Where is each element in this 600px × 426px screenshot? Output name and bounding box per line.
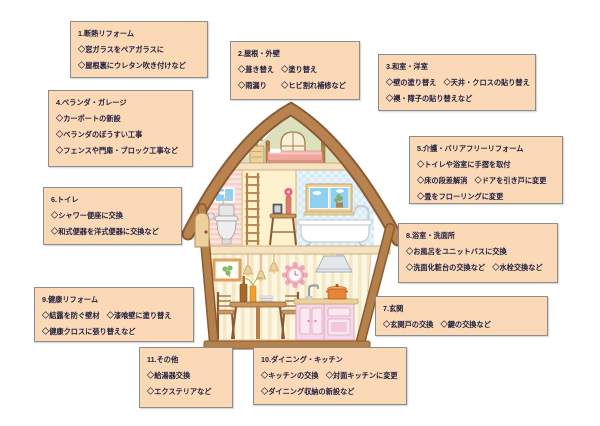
category-box-bathroom-washroom: 8.浴室・洗面所 ◇お風呂をユニットバスに交換 ◇洗面化粧台の交換など ◇水栓交… — [398, 223, 558, 283]
box-line: ◇健康クロスに張り替えなど — [42, 324, 187, 340]
box-line: ◇襖・障子の貼り替えなど — [386, 91, 529, 107]
wall-picture-icon — [214, 260, 240, 280]
category-box-others: 11.その他 ◇給湯器交換 ◇エクステリアなど — [139, 347, 233, 408]
box-line: ◇壁の塗り替え ◇天井・クロスの貼り替え — [386, 75, 529, 91]
category-box-dining-kitchen: 10.ダイニング・キッチン ◇キッチンの交換 ◇対面キッチンに変更 ◇ダイニング… — [253, 347, 407, 405]
box-line: ◇キッチンの交換 ◇対面キッチンに変更 — [261, 368, 400, 384]
ground-floor — [206, 250, 371, 340]
middle-floor — [208, 170, 374, 246]
box-title: 5.介護・バリアフリーリフォーム — [417, 141, 556, 157]
box-line: ◇フェンスや門扉・ブロック工事など — [56, 143, 186, 159]
box-line: ◇床の段差解消 ◇ドアを引き戸に変更 — [417, 173, 556, 189]
entry-door-icon — [195, 213, 209, 247]
category-box-roof-exterior: 2.屋根・外壁 ◇葺き替え ◇塗り替え ◇雨漏り ◇ヒビ割れ補修など — [230, 41, 360, 100]
box-line: ◇ダイニング収納の新設など — [261, 384, 400, 400]
box-line: ◇お風呂をユニットバスに交換 — [406, 244, 551, 260]
category-box-toilet: 6.トイレ ◇シャワー便座に交換 ◇和式便器を洋式便器に交換など — [43, 187, 182, 245]
category-box-health: 9.健康リフォーム ◇結露を防ぐ壁材 ◇漆喰壁に塗り替え ◇健康クロスに張り替え… — [34, 287, 194, 342]
box-line: ◇葺き替え ◇塗り替え — [238, 62, 353, 78]
box-title: 4.ベランダ・ガレージ — [56, 95, 186, 111]
box-line: ◇窓ガラスをペアガラスに — [78, 42, 201, 58]
wall-clock-icon — [282, 262, 308, 288]
kitchen-cabinet-icon — [294, 298, 358, 340]
box-line: ◇和式便器を洋式便器に交換など — [51, 224, 175, 240]
category-box-barrier-free: 5.介護・バリアフリーリフォーム ◇トイレや浴室に手摺を取付 ◇床の段差解消 ◇… — [409, 136, 563, 204]
box-title: 9.健康リフォーム — [42, 292, 187, 308]
box-title: 6.トイレ — [51, 192, 175, 208]
box-line: ◇雨漏り ◇ヒビ割れ補修など — [238, 78, 353, 94]
box-title: 3.和室・洋室 — [386, 59, 529, 75]
bath-window-icon — [304, 184, 354, 215]
box-line: ◇トイレや浴室に手摺を取付 — [417, 157, 556, 173]
floor-band — [202, 246, 390, 254]
box-line: ◇エクステリアなど — [147, 384, 226, 400]
vase-icon — [286, 196, 291, 214]
box-line: ◇カーポートの新設 — [56, 111, 186, 127]
box-line: ◇玄関戸の交換 ◇鍵の交換など — [383, 317, 541, 333]
box-title: 1.断熱リフォーム — [78, 26, 201, 42]
category-box-veranda-garage: 4.ベランダ・ガレージ ◇カーポートの新設 ◇ベランダのぼうすい工事 ◇フェンス… — [48, 90, 193, 167]
box-title: 10.ダイニング・キッチン — [261, 352, 400, 368]
box-title: 8.浴室・洗面所 — [406, 228, 551, 244]
box-line: ◇給湯器交換 — [147, 368, 226, 384]
box-title: 11.その他 — [147, 352, 226, 368]
attic-floor-band — [228, 163, 352, 170]
box-line: ◇結露を防ぐ壁材 ◇漆喰壁に塗り替え — [42, 308, 187, 324]
box-title: 2.屋根・外壁 — [238, 46, 353, 62]
box-line: ◇シャワー便座に交換 — [51, 208, 175, 224]
box-line: ◇ベランダのぼうすい工事 — [56, 127, 186, 143]
category-box-entrance: 7.玄関 ◇玄関戸の交換 ◇鍵の交換など — [375, 296, 548, 336]
category-box-insulation: 1.断熱リフォーム ◇窓ガラスをペアガラスに ◇屋根裏にウレタン吹き付けなど — [70, 21, 208, 78]
category-box-japanese-western-rooms: 3.和室・洋室 ◇壁の塗り替え ◇天井・クロスの貼り替え ◇襖・障子の貼り替えな… — [378, 54, 536, 111]
box-line: ◇屋根裏にウレタン吹き付けなど — [78, 58, 201, 74]
box-line: ◇畳をフローリングに変更 — [417, 189, 556, 204]
renovation-diagram: 1.断熱リフォーム ◇窓ガラスをペアガラスに ◇屋根裏にウレタン吹き付けなど 2… — [0, 0, 600, 426]
box-line: ◇洗面化粧台の交換など ◇水栓交換など — [406, 260, 551, 276]
box-title: 7.玄関 — [383, 301, 541, 317]
